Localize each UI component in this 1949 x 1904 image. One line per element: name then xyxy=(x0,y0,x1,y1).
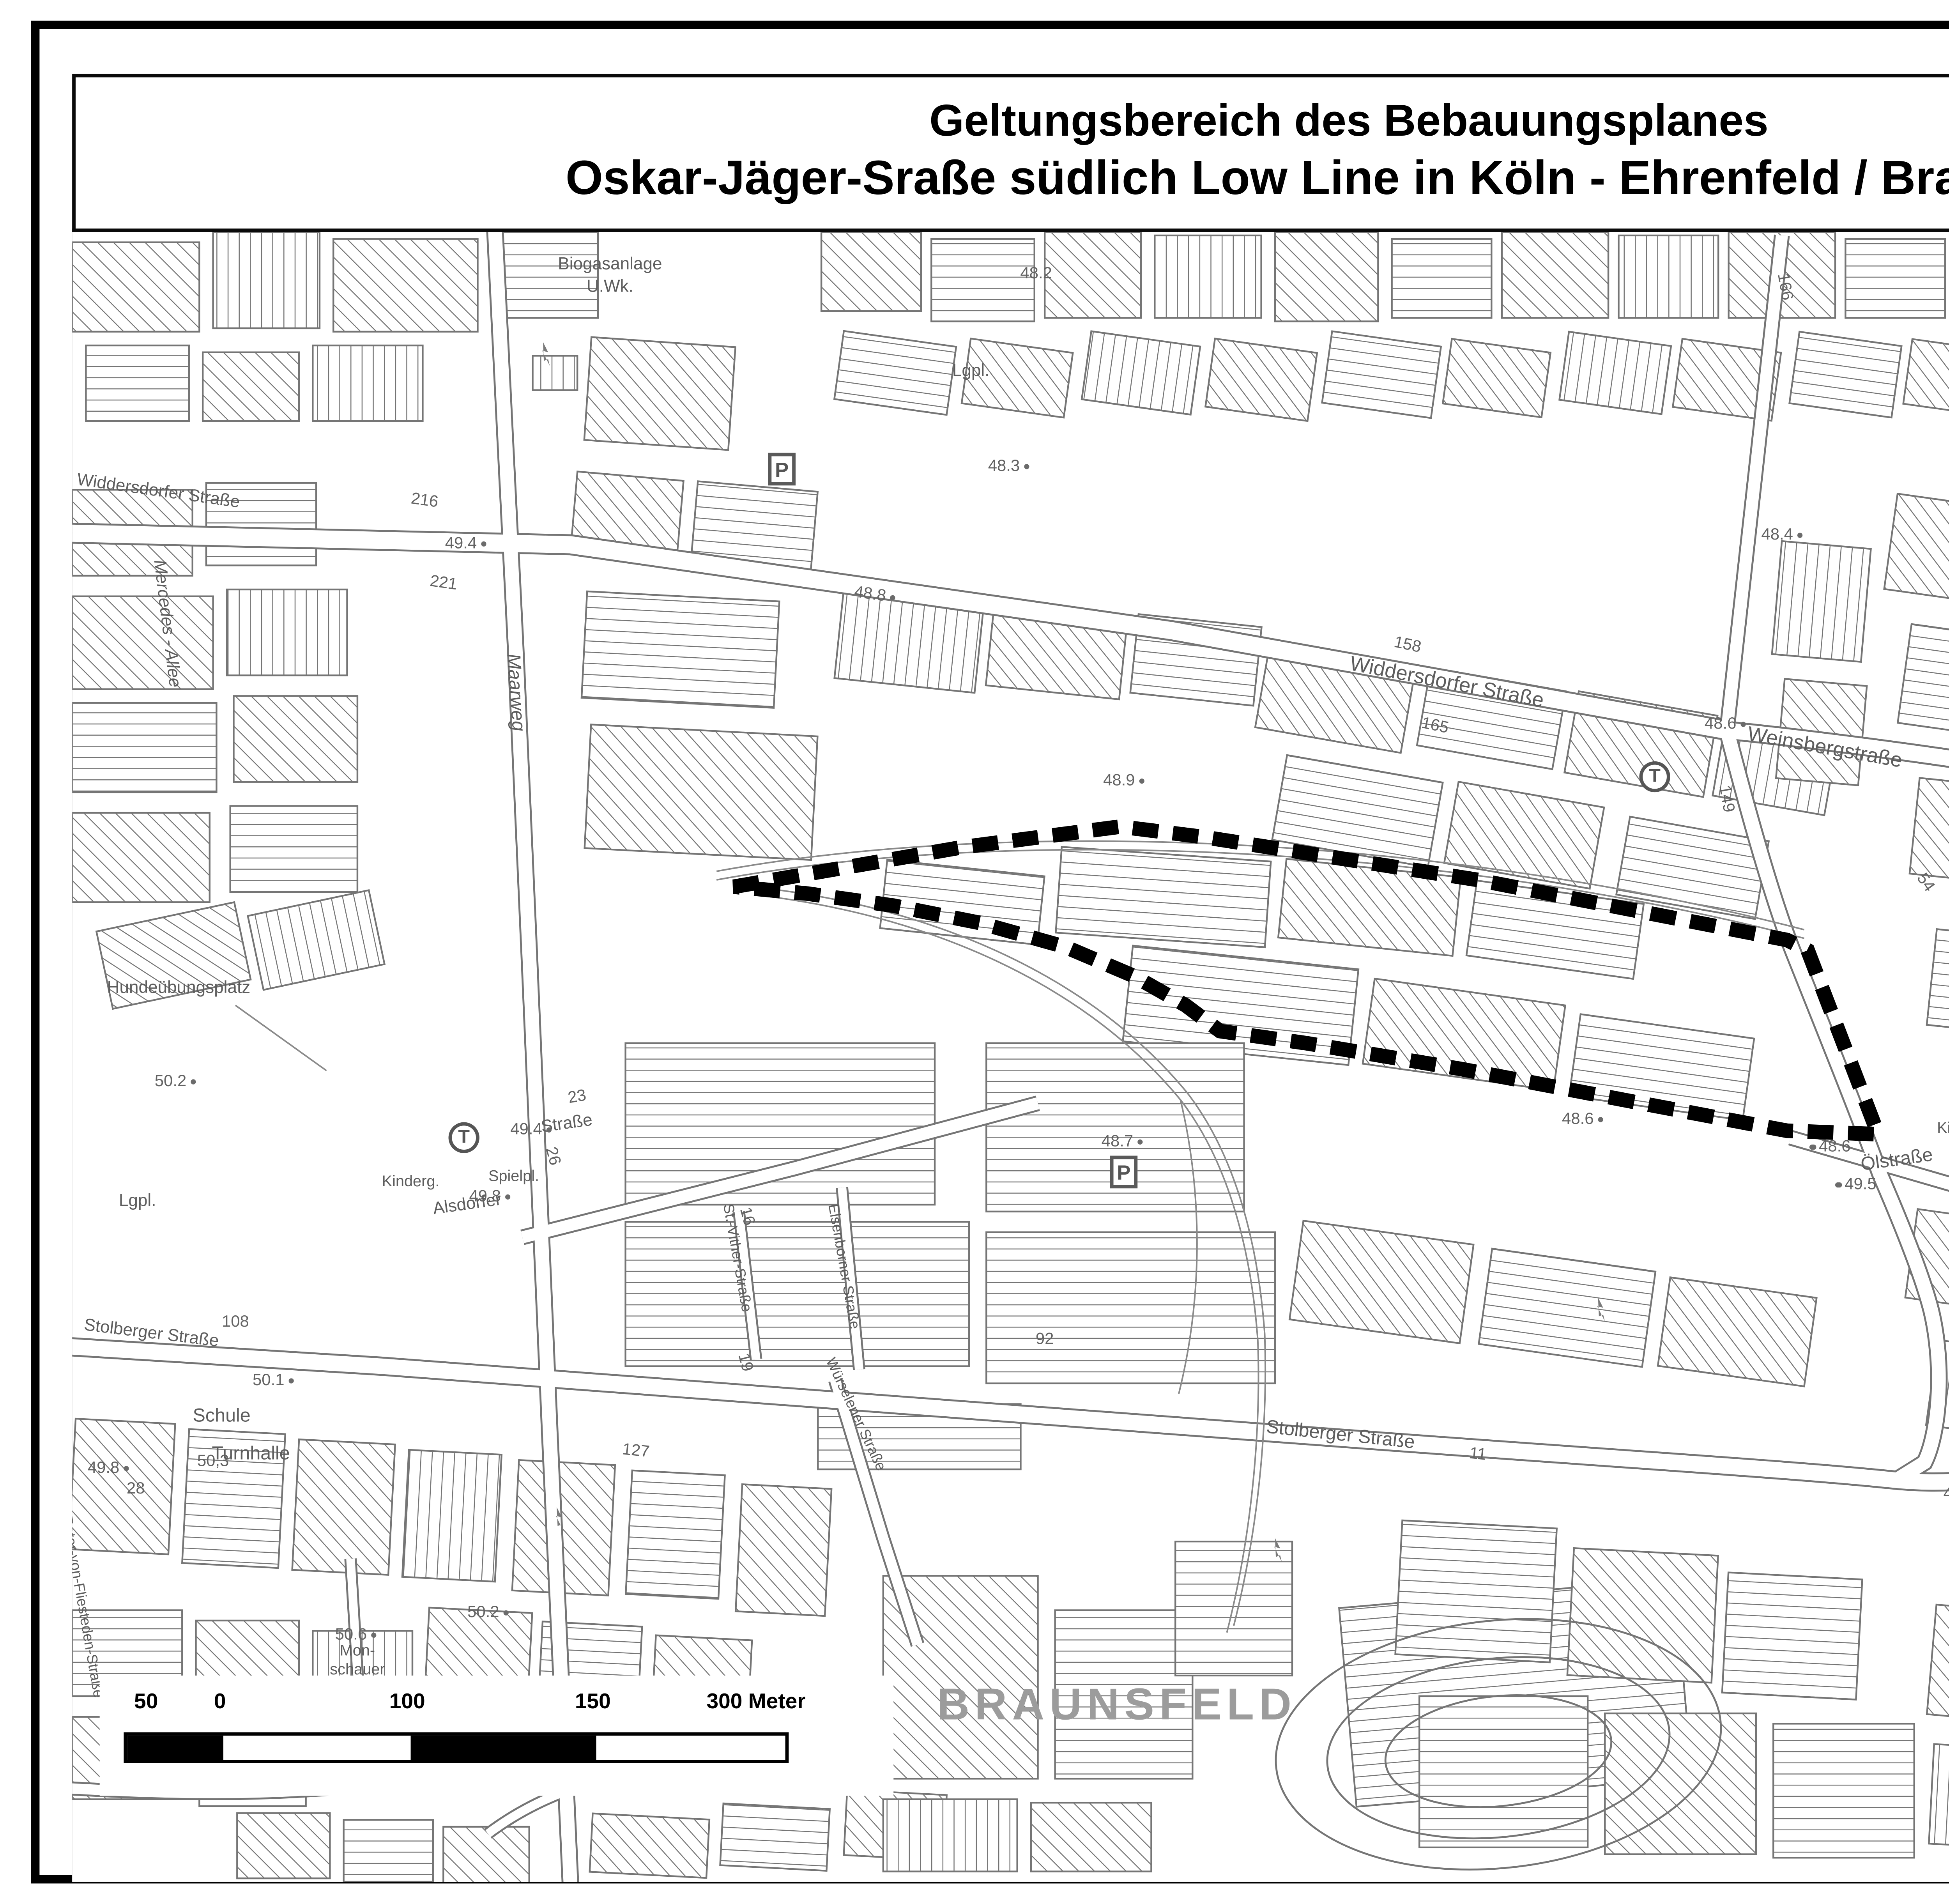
elevation-dot-icon xyxy=(1137,1139,1143,1145)
building-block xyxy=(1205,339,1317,421)
building-block xyxy=(344,1820,433,1882)
building-block xyxy=(227,589,347,675)
building-block xyxy=(1929,1744,1949,1851)
building-block xyxy=(880,860,1045,945)
building-block xyxy=(590,1814,709,1878)
map-area: Widdersdorfer StraßeMercedes - AlleeMaar… xyxy=(72,232,1949,1882)
building-block xyxy=(582,591,779,708)
place-label: Kinderg. xyxy=(1937,1121,1949,1137)
scale-segment xyxy=(596,1736,785,1760)
building-block xyxy=(203,352,299,421)
elevation-label: 50.2 xyxy=(467,1605,512,1622)
building-block xyxy=(1419,1696,1588,1847)
building-block xyxy=(1045,232,1141,318)
place-label: Schule xyxy=(193,1408,251,1428)
elevation-dot-icon xyxy=(123,1465,129,1471)
building-block xyxy=(1155,235,1261,318)
title-block: Geltungsbereich des Bebauungsplanes Oska… xyxy=(72,74,1949,232)
tram-stop-icon: T xyxy=(449,1122,479,1153)
house-number: 11 xyxy=(1468,1446,1487,1465)
place-label: Kinderg. xyxy=(382,1174,440,1191)
elevation-label: 48.6 xyxy=(1562,1112,1607,1129)
scale-segment xyxy=(411,1736,596,1760)
house-number: 92 xyxy=(1036,1332,1054,1349)
scale-bar: 500100150300 Meter xyxy=(100,1676,894,1796)
elevation-label: 49.4 xyxy=(445,536,490,553)
building-block xyxy=(883,1799,1017,1871)
scale-label: 150 xyxy=(575,1689,611,1713)
elevation-label: 48.2 xyxy=(1020,266,1052,283)
building-block xyxy=(1884,494,1949,609)
building-block xyxy=(234,696,357,782)
building-block xyxy=(1845,239,1945,318)
building-block xyxy=(213,232,320,328)
tram-stop-icon: T xyxy=(1639,761,1670,792)
building-block xyxy=(1559,332,1671,414)
elevation-dot-icon xyxy=(504,1194,510,1200)
building-block xyxy=(736,1484,831,1616)
elevation-label: 49.7 xyxy=(1944,1486,1949,1504)
plan-sheet-viewport: Geltungsbereich des Bebauungsplanes Oska… xyxy=(0,0,1949,1904)
elevation-label: 48.4 xyxy=(1761,527,1806,545)
plan-sheet: Geltungsbereich des Bebauungsplanes Oska… xyxy=(0,0,1949,1904)
building-block xyxy=(1927,929,1949,1040)
building-block xyxy=(1619,235,1719,318)
building-block xyxy=(720,1803,829,1871)
building-block xyxy=(1898,624,1949,744)
scale-label: 100 xyxy=(389,1689,425,1713)
elevation-dot-icon xyxy=(1809,1144,1815,1150)
scale-segment xyxy=(223,1736,410,1760)
building-block xyxy=(1289,1221,1473,1343)
elevation-label: 50,3 xyxy=(197,1454,229,1471)
elevation-label: 50.6 xyxy=(335,1628,380,1645)
building-block xyxy=(533,356,578,390)
elevation-label: 48.6 xyxy=(1705,717,1749,734)
building-block xyxy=(584,337,736,450)
scale-label: 50 xyxy=(134,1689,158,1713)
place-label: Lgpl. xyxy=(952,364,990,382)
house-number: 23 xyxy=(567,1088,588,1108)
elevation-dot-icon xyxy=(502,1610,508,1616)
elevation-dot-icon xyxy=(190,1079,196,1085)
house-number: 108 xyxy=(222,1315,249,1332)
elevation-dot-icon xyxy=(889,594,895,601)
scale-segment xyxy=(127,1736,223,1760)
building-block xyxy=(86,345,189,421)
elevation-label: 50.1 xyxy=(253,1373,297,1390)
building-block xyxy=(986,1232,1275,1384)
building-block xyxy=(821,232,921,311)
building-block xyxy=(1275,232,1378,321)
building-block xyxy=(1567,1548,1718,1683)
elevation-label: 49.8 xyxy=(469,1189,514,1207)
building-block xyxy=(230,806,357,892)
building-block xyxy=(1605,1713,1756,1854)
elevation-dot-icon xyxy=(370,1632,376,1638)
house-number: 216 xyxy=(410,492,439,512)
elevation-label: 50.2 xyxy=(155,1074,200,1091)
building-block xyxy=(1790,332,1902,418)
building-block xyxy=(1658,1277,1816,1386)
elevation-label: 49.5 xyxy=(1832,1177,1876,1194)
title-line-2: Oskar-Jäger-Sraße südlich Low Line in Kö… xyxy=(72,149,1949,206)
elevation-label: 49.4 xyxy=(510,1122,555,1140)
district-label: BRAUNSFELD xyxy=(937,1678,1296,1732)
parking-icon: P xyxy=(1110,1156,1138,1189)
building-block xyxy=(1395,1520,1557,1662)
building-block xyxy=(1772,541,1871,662)
place-label: Biogasanlage xyxy=(558,257,662,275)
building-block xyxy=(626,1043,935,1205)
building-block xyxy=(402,1450,502,1582)
building-block xyxy=(1031,1803,1151,1871)
building-block xyxy=(1392,239,1492,318)
elevation-label: 49.8 xyxy=(88,1461,133,1478)
house-number: 221 xyxy=(429,574,458,595)
parking-icon: P xyxy=(768,453,796,486)
building-block xyxy=(1082,331,1200,415)
building-block xyxy=(1722,1573,1862,1700)
building-block xyxy=(248,890,385,990)
building-block xyxy=(626,1470,725,1599)
building-block xyxy=(333,239,478,332)
elevation-dot-icon xyxy=(1597,1117,1603,1122)
place-label: Hundeübungsplatz xyxy=(107,981,251,999)
building-block xyxy=(72,242,199,332)
title-line-1: Geltungsbereich des Bebauungsplanes xyxy=(72,93,1949,149)
building-block xyxy=(72,813,210,902)
building-block xyxy=(1903,339,1949,417)
elevation-label: 48.7 xyxy=(1102,1134,1146,1151)
elevation-label: 48.6 xyxy=(1806,1140,1851,1157)
building-block xyxy=(834,331,956,415)
street-label: Mon- xyxy=(340,1643,375,1660)
scale-label: 300 Meter xyxy=(706,1689,805,1713)
building-block xyxy=(931,239,1034,322)
building-block xyxy=(237,1813,330,1879)
place-label: U.Wk. xyxy=(587,280,633,297)
scale-label: 0 xyxy=(214,1689,226,1713)
building-block xyxy=(626,1222,969,1366)
building-block xyxy=(1502,232,1608,318)
elevation-dot-icon xyxy=(1797,532,1802,538)
elevation-dot-icon xyxy=(1835,1182,1841,1188)
building-block xyxy=(1056,847,1271,947)
building-block xyxy=(72,1419,175,1554)
building-block xyxy=(292,1439,395,1575)
building-block xyxy=(72,703,216,792)
elevation-dot-icon xyxy=(1138,778,1144,784)
place-label: Lgpl. xyxy=(119,1194,156,1212)
elevation-label: 48.9 xyxy=(1103,773,1148,791)
building-block xyxy=(1175,1541,1292,1676)
elevation-dot-icon xyxy=(1740,721,1746,727)
rail-line xyxy=(235,1005,327,1071)
building-block xyxy=(1479,1249,1655,1367)
place-label: Spielpl. xyxy=(488,1169,539,1186)
elevation-dot-icon xyxy=(480,541,486,547)
scale-bar-segments xyxy=(124,1732,789,1763)
building-block xyxy=(1322,331,1441,418)
building-block xyxy=(72,596,213,689)
building-block xyxy=(443,1827,529,1882)
building-block xyxy=(1773,1724,1914,1858)
elevation-dot-icon xyxy=(288,1378,294,1384)
house-number: 28 xyxy=(127,1481,145,1499)
elevation-label: 48.3 xyxy=(988,459,1033,476)
elevation-dot-icon xyxy=(1023,464,1029,469)
house-number: 127 xyxy=(621,1442,650,1462)
building-block xyxy=(1443,339,1551,417)
building-block xyxy=(1927,1605,1949,1726)
elevation-dot-icon xyxy=(546,1127,552,1133)
building-block xyxy=(585,724,818,860)
building-block xyxy=(313,345,423,421)
